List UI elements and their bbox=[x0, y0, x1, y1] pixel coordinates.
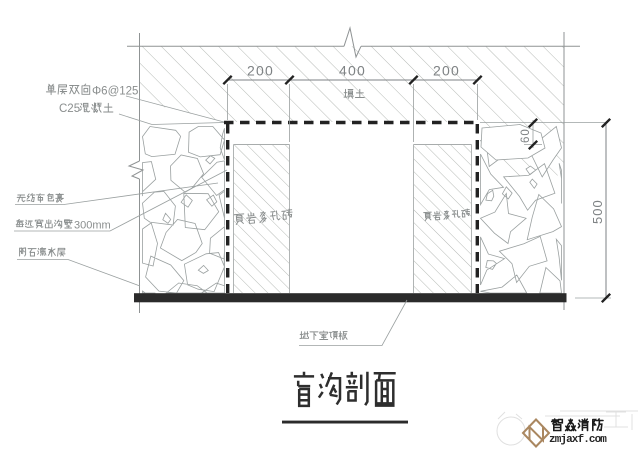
svg-text:C25: C25 bbox=[59, 103, 80, 115]
svg-text:zmjaxf.com: zmjaxf.com bbox=[549, 434, 607, 446]
svg-text:60: 60 bbox=[520, 128, 532, 143]
svg-text:400: 400 bbox=[339, 63, 366, 79]
svg-text:200: 200 bbox=[433, 63, 460, 79]
svg-text:200: 200 bbox=[247, 63, 274, 79]
svg-text:300mm: 300mm bbox=[74, 220, 111, 232]
svg-text:500: 500 bbox=[590, 199, 605, 224]
svg-text:Φ6@125: Φ6@125 bbox=[92, 86, 138, 98]
